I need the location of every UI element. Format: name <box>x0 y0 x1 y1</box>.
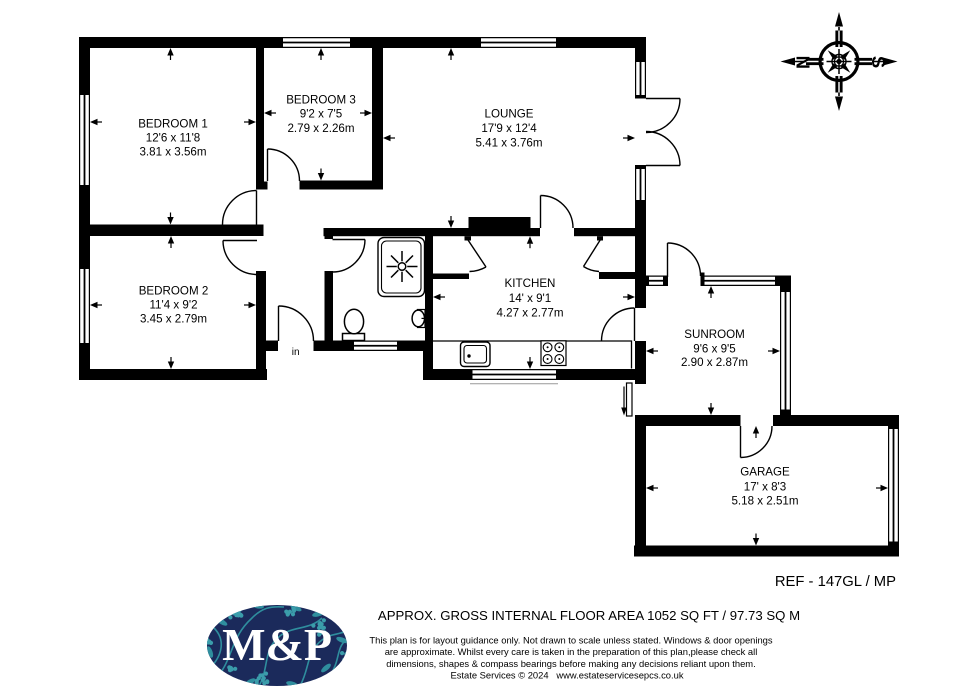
svg-text:2.90 x 2.87m: 2.90 x 2.87m <box>681 356 748 369</box>
svg-text:M&P: M&P <box>222 619 332 670</box>
svg-text:This plan is for layout guidan: This plan is for layout guidance only. N… <box>369 634 772 645</box>
svg-text:3.81 x 3.56m: 3.81 x 3.56m <box>139 146 206 159</box>
svg-text:KITCHEN: KITCHEN <box>505 277 556 290</box>
svg-text:2.79 x 2.26m: 2.79 x 2.26m <box>287 122 354 135</box>
svg-text:in: in <box>292 347 300 358</box>
svg-text:GARAGE: GARAGE <box>740 466 790 479</box>
svg-text:BEDROOM 2: BEDROOM 2 <box>139 284 209 297</box>
svg-text:17' x 8'3: 17' x 8'3 <box>744 481 786 494</box>
svg-text:12'6 x 11'8: 12'6 x 11'8 <box>146 132 201 145</box>
svg-text:APPROX. GROSS INTERNAL FLOOR A: APPROX. GROSS INTERNAL FLOOR AREA 1052 S… <box>378 608 800 623</box>
svg-text:4.27 x 2.77m: 4.27 x 2.77m <box>496 307 563 320</box>
svg-text:REF - 147GL / MP: REF - 147GL / MP <box>775 574 896 590</box>
svg-text:3.45 x 2.79m: 3.45 x 2.79m <box>140 313 207 326</box>
svg-text:14' x 9'1: 14' x 9'1 <box>509 292 551 305</box>
svg-text:11'4 x 9'2: 11'4 x 9'2 <box>149 298 197 311</box>
svg-text:9'6 x 9'5: 9'6 x 9'5 <box>693 343 735 356</box>
svg-text:17'9 x 12'4: 17'9 x 12'4 <box>481 122 537 135</box>
svg-text:Estate Services © 2024 www.e: Estate Services © 2024 www.estateservice… <box>450 670 683 681</box>
svg-text:dimensions, shapes & compass b: dimensions, shapes & compass bearings be… <box>386 658 755 669</box>
svg-text:5.41 x 3.76m: 5.41 x 3.76m <box>475 137 542 150</box>
svg-text:BEDROOM 1: BEDROOM 1 <box>138 118 208 131</box>
svg-text:N: N <box>792 56 813 69</box>
svg-text:S: S <box>868 56 889 68</box>
svg-text:BEDROOM 3: BEDROOM 3 <box>286 93 356 106</box>
svg-text:SUNROOM: SUNROOM <box>684 328 745 341</box>
svg-text:are approximate. Whilst every: are approximate. Whilst every care is ta… <box>385 646 758 657</box>
svg-text:5.18 x 2.51m: 5.18 x 2.51m <box>731 495 798 508</box>
svg-text:9'2 x 7'5: 9'2 x 7'5 <box>300 108 342 121</box>
svg-text:LOUNGE: LOUNGE <box>485 108 534 121</box>
